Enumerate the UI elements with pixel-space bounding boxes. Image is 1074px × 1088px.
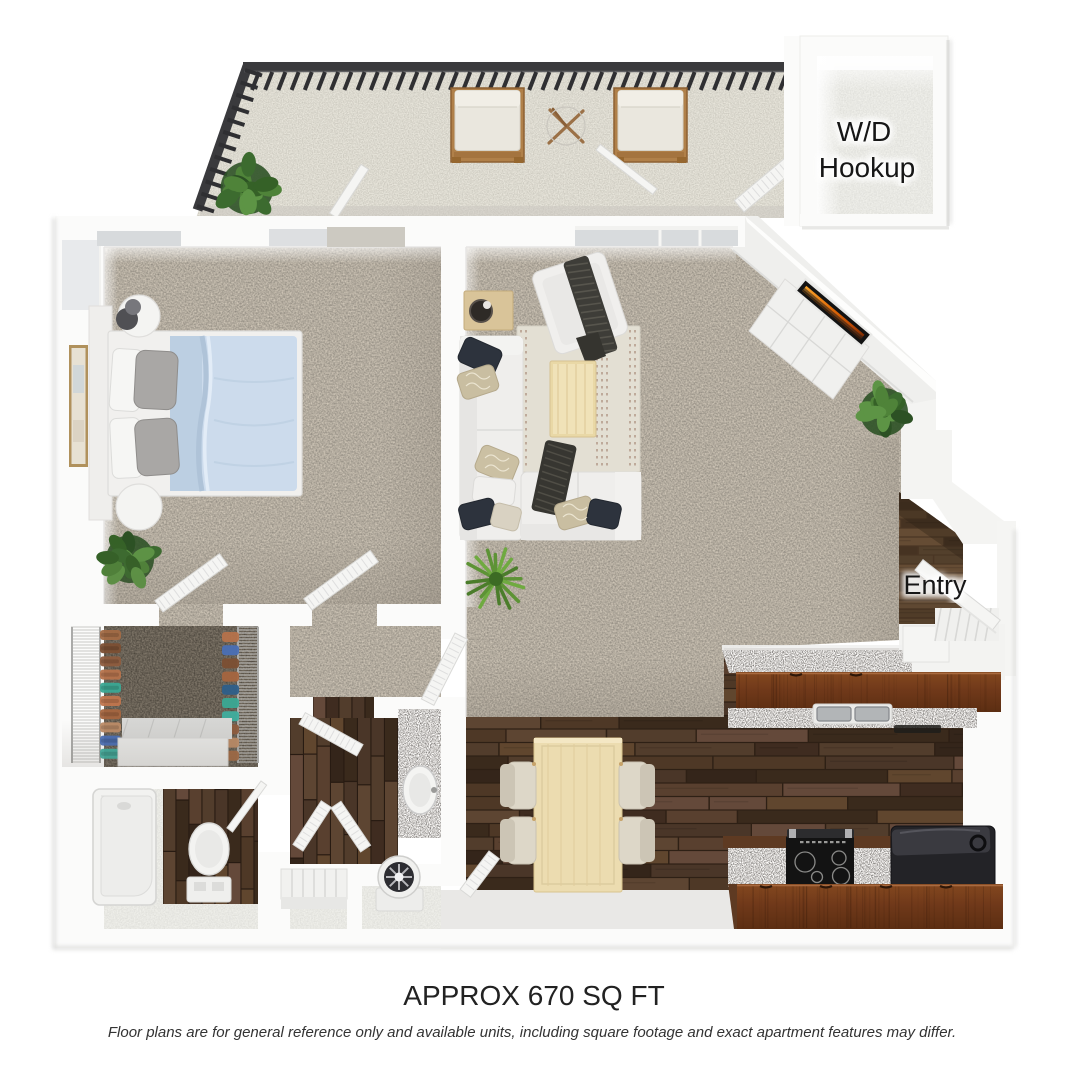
svg-text:W/D: W/D [837,116,891,147]
svg-text:Entry: Entry [903,570,967,600]
svg-text:Hookup: Hookup [819,152,916,183]
svg-text:APPROX 670 SQ FT: APPROX 670 SQ FT [403,980,664,1011]
svg-text:Floor plans are for general re: Floor plans are for general reference on… [108,1024,956,1041]
